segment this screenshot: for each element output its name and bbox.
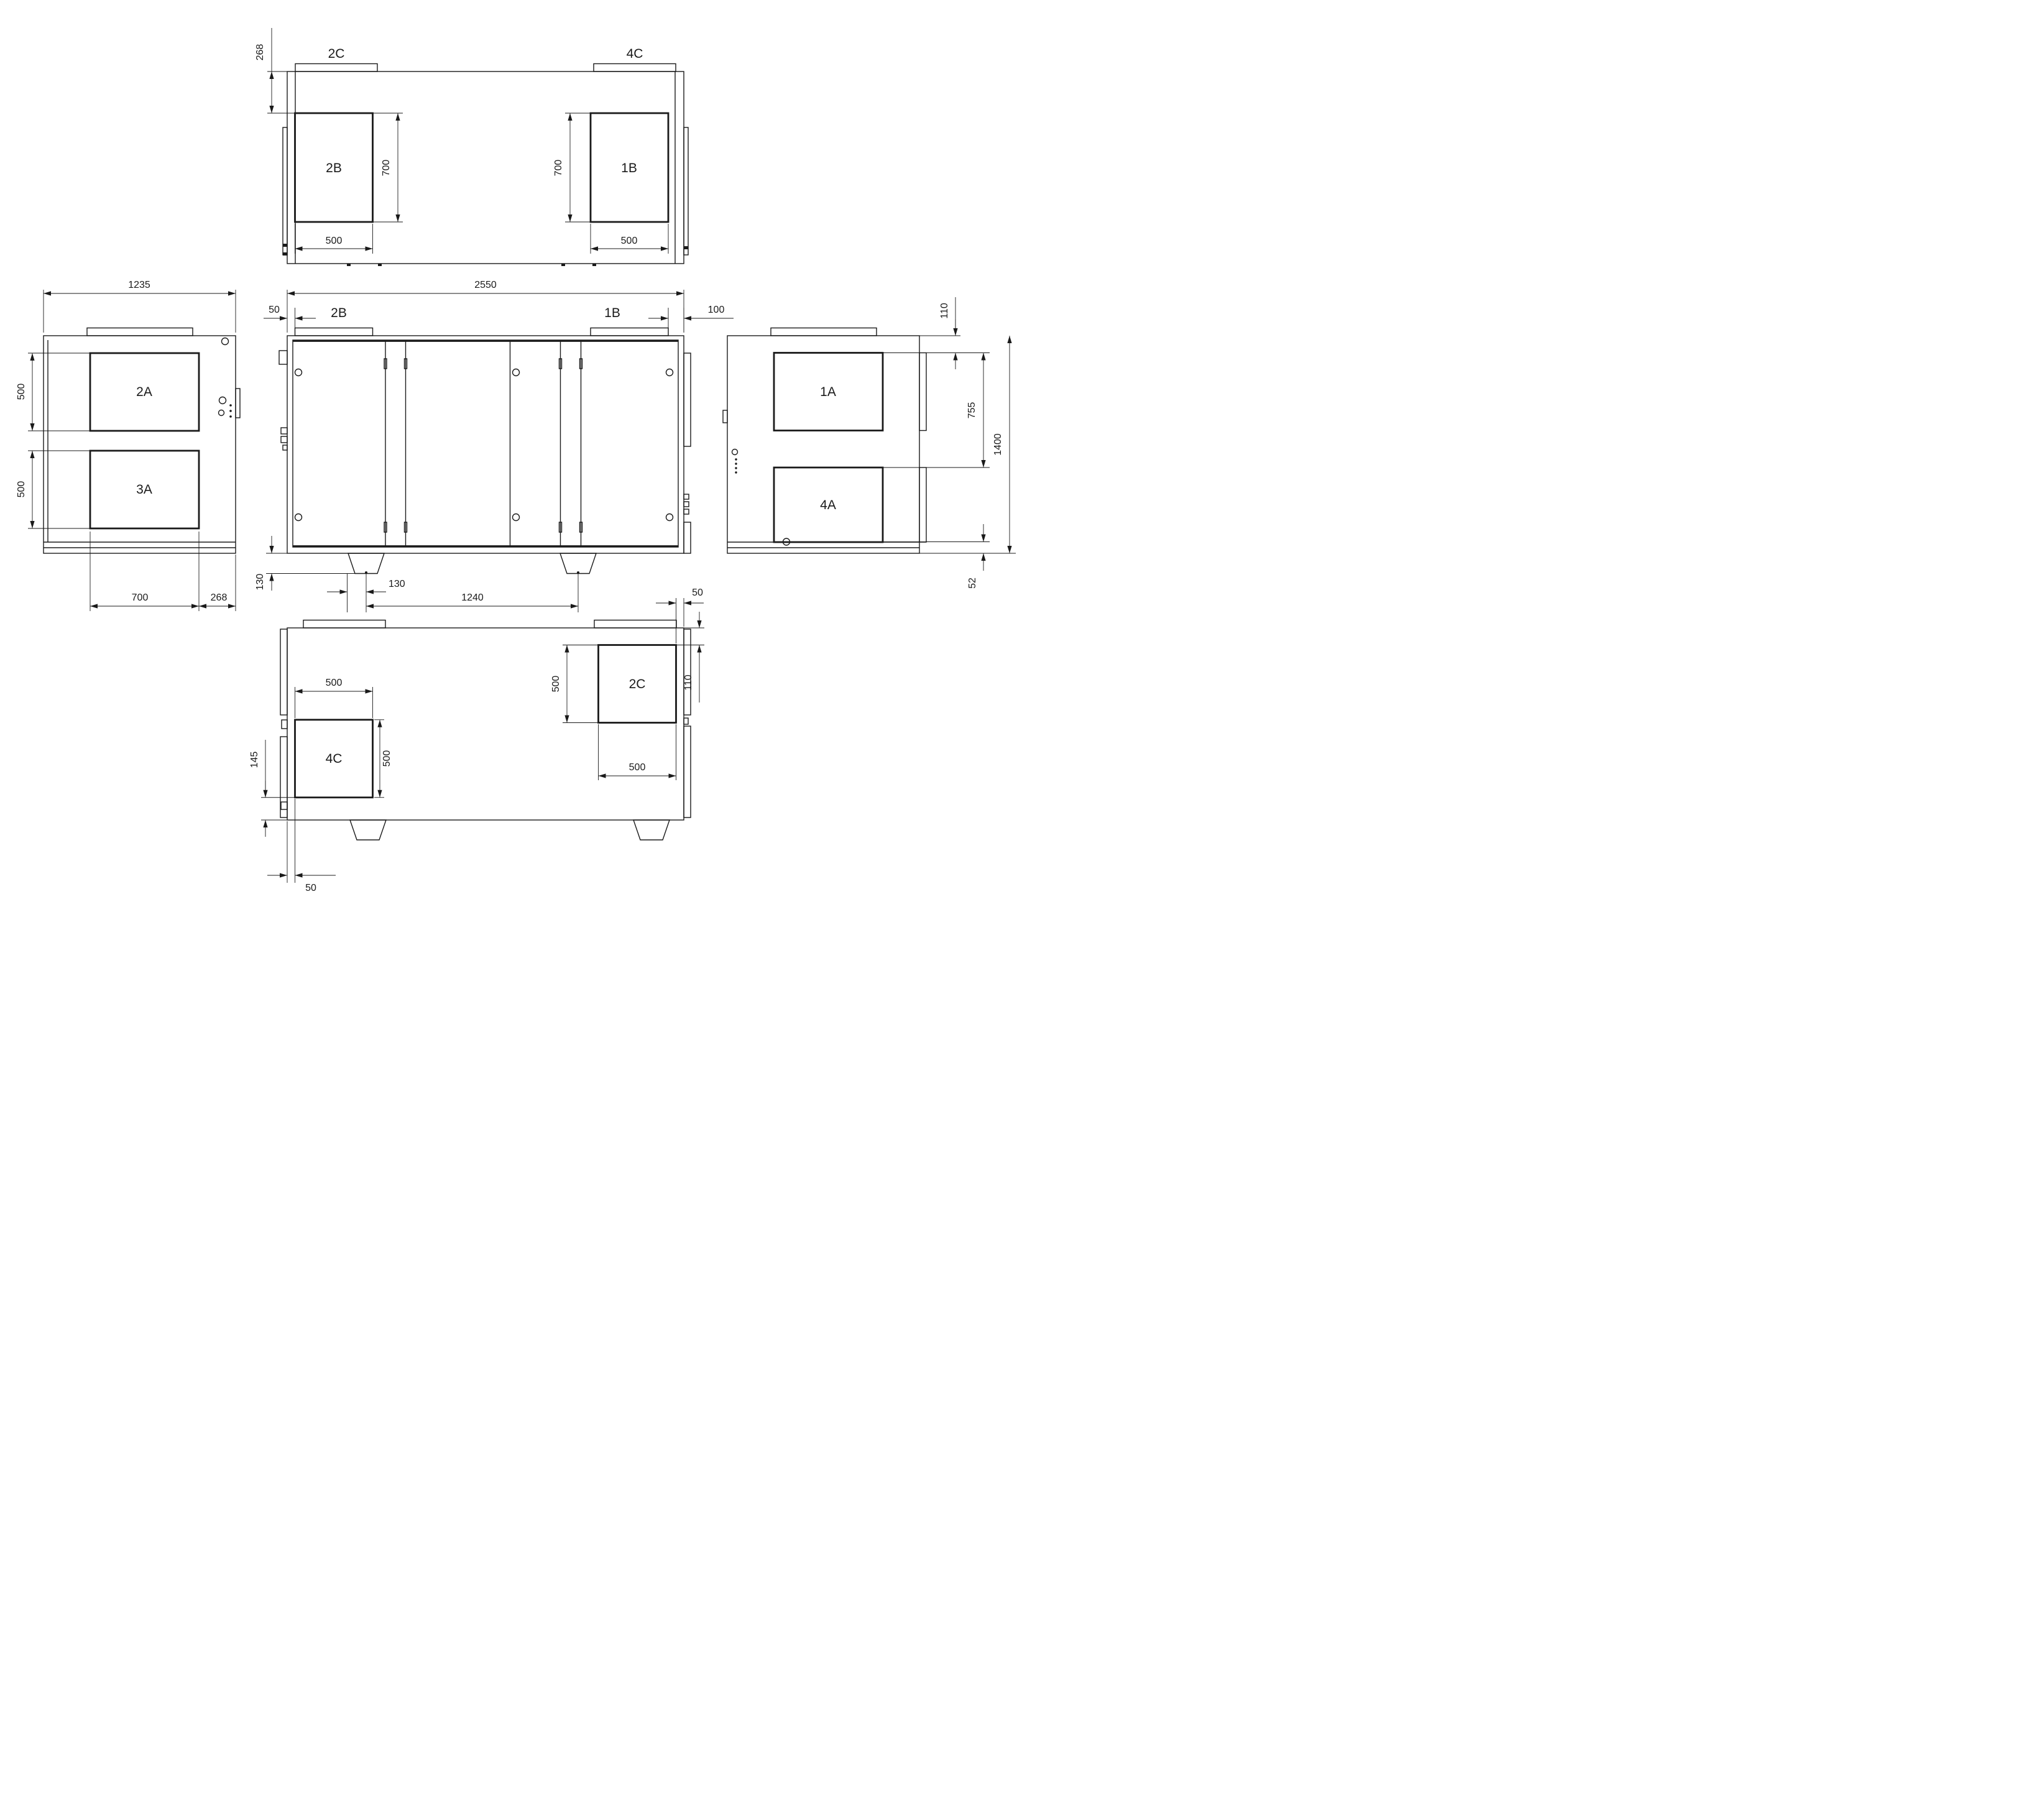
left-view-tab (87, 328, 193, 336)
dim-text-52: 52 (967, 578, 978, 589)
label-2c-top: 2C (328, 47, 345, 61)
right-view-flange-upper (919, 353, 926, 431)
left-view: 2A 3A 1235 500 500 700 268 (16, 280, 240, 611)
left-view-lock-circle (222, 338, 229, 345)
dim-front-130-horiz: 130 (327, 574, 405, 613)
dim-left-1235: 1235 (44, 280, 236, 333)
dim-top-700-right: 700 (553, 113, 591, 222)
bottom-right-flange-upper (684, 629, 691, 715)
dim-text-2550: 2550 (474, 280, 497, 290)
technical-drawing-page: 2C 4C 2B 1B 268 700 700 500 (0, 0, 1022, 900)
dim-bottom-145: 145 (249, 740, 295, 837)
dim-top-700-left: 700 (373, 113, 403, 222)
dim-text-700-left: 700 (381, 160, 392, 177)
dim-right-755: 755 (883, 353, 990, 468)
front-view: 2550 50 2B 1B 100 130 130 1240 (255, 280, 734, 612)
label-3a: 3A (136, 482, 152, 497)
dim-bottom-500-2c-h: 500 (599, 724, 676, 780)
dim-text-50-left: 50 (269, 305, 280, 315)
top-view-tab-4c (594, 64, 676, 72)
dim-top-500-left: 500 (295, 224, 373, 254)
dim-text-700-3a: 700 (132, 592, 149, 603)
dim-front-50: 50 (264, 305, 316, 333)
dim-bottom-50-top: 50 (656, 587, 704, 643)
dim-text-500-2c-h: 500 (629, 762, 646, 773)
bottom-view: 2C 4C 50 110 500 500 500 (249, 587, 704, 893)
dim-text-700-right: 700 (553, 160, 564, 177)
right-view-flange-lower (919, 468, 926, 542)
dim-text-1400: 1400 (993, 433, 1003, 456)
top-view-right-flange (684, 127, 688, 255)
dim-text-500-2c-v: 500 (551, 676, 561, 693)
dim-bottom-50: 50 (267, 799, 336, 893)
dim-right-52: 52 (967, 524, 983, 589)
right-view-lock-circle (732, 449, 738, 455)
dim-bottom-110: 110 (676, 612, 705, 702)
dim-text-268: 268 (255, 44, 265, 61)
top-view-left-flange (283, 127, 287, 255)
front-flange-2b (295, 328, 373, 336)
dim-text-50-bottom: 50 (305, 883, 316, 893)
dim-text-145: 145 (249, 752, 260, 768)
dim-bottom-500-4c-h: 500 (295, 678, 373, 718)
label-2b-front: 2B (331, 306, 347, 320)
dim-text-110-right: 110 (939, 303, 950, 319)
bottom-left-flange-upper (280, 629, 287, 715)
right-view-tab (771, 328, 877, 336)
right-view: 1A 4A 110 755 1400 52 (723, 297, 1016, 589)
label-2c-bottom: 2C (629, 677, 646, 691)
dim-text-268-left: 268 (211, 592, 228, 603)
dim-left-500-top: 500 (16, 353, 90, 431)
dim-text-1240: 1240 (461, 592, 484, 603)
label-1b-front: 1B (604, 306, 620, 320)
dim-text-50-top: 50 (692, 587, 703, 598)
left-view-outline (44, 336, 236, 553)
label-4c-bottom: 4C (326, 752, 343, 766)
dim-text-500-2a: 500 (16, 384, 27, 400)
dim-top-500-right: 500 (591, 224, 668, 254)
dim-right-110: 110 (883, 297, 990, 369)
dim-bottom-500-2c-v: 500 (551, 645, 599, 723)
dim-left-700: 700 268 (90, 532, 236, 611)
front-right-flange-lower (684, 522, 691, 553)
dim-text-100: 100 (708, 305, 725, 315)
left-view-right-tab (236, 389, 240, 418)
dim-front-100: 100 (648, 305, 734, 333)
front-right-flange-upper (684, 353, 691, 446)
dim-front-130-vert: 130 (255, 536, 357, 591)
bottom-view-tab-left (303, 620, 385, 629)
dim-text-755: 755 (967, 402, 977, 419)
hinge-slots (384, 359, 582, 532)
label-2a: 2A (136, 385, 152, 399)
dim-text-500-2b: 500 (326, 236, 343, 246)
dim-text-500-3a: 500 (16, 481, 27, 498)
right-view-left-clip (723, 410, 727, 423)
dim-text-1235: 1235 (128, 280, 150, 290)
front-view-outline (287, 336, 684, 553)
bottom-feet (350, 820, 670, 840)
dim-text-500-1b: 500 (621, 236, 638, 246)
screw-circles (295, 369, 673, 521)
dim-bottom-500-4c-v: 500 (374, 720, 392, 798)
dim-text-500-4c-v: 500 (382, 750, 392, 767)
dim-text-130v: 130 (255, 574, 265, 591)
drawing-canvas: 2C 4C 2B 1B 268 700 700 500 (0, 0, 1022, 900)
bottom-right-flange-lower (684, 726, 691, 818)
right-view-outline (727, 336, 919, 553)
top-view-tab-2c (295, 64, 377, 72)
bottom-view-outline (287, 628, 684, 820)
front-view-panel-frame (293, 340, 678, 547)
dim-right-1400: 1400 (919, 336, 1016, 553)
label-1a: 1A (820, 385, 836, 399)
bottom-view-tab-right (594, 620, 676, 629)
label-4c-top: 4C (627, 47, 643, 61)
label-4a: 4A (820, 498, 836, 512)
front-flange-1b (591, 328, 668, 336)
dim-left-500-bottom: 500 (16, 451, 90, 528)
dim-text-500-4c-h: 500 (326, 678, 343, 688)
label-2b-top: 2B (326, 161, 342, 175)
dim-text-110-bottom: 110 (683, 675, 694, 691)
top-view: 2C 4C 2B 1B 268 700 700 500 (255, 28, 688, 266)
label-1b-top: 1B (621, 161, 637, 175)
dim-top-268: 268 (255, 28, 295, 113)
front-feet (348, 553, 596, 574)
front-left-clip (279, 351, 287, 364)
dim-text-130h: 130 (389, 579, 405, 589)
